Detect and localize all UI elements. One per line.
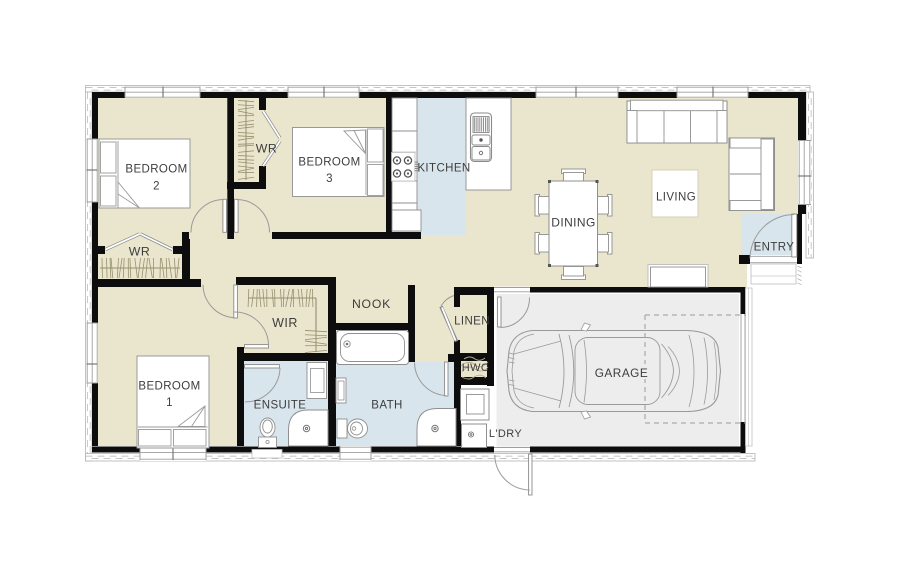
svg-text:WR: WR (129, 245, 151, 259)
svg-text:BEDROOM: BEDROOM (138, 381, 200, 393)
svg-text:KITCHEN: KITCHEN (417, 163, 470, 175)
svg-text:ENTRY: ENTRY (754, 242, 795, 254)
svg-text:WIR: WIR (272, 316, 298, 330)
svg-text:LINEN: LINEN (454, 316, 490, 328)
svg-text:ENSUITE: ENSUITE (254, 400, 307, 412)
svg-text:DINING: DINING (551, 216, 595, 230)
svg-text:LIVING: LIVING (656, 192, 696, 204)
svg-text:1: 1 (166, 397, 173, 409)
svg-text:NOOK: NOOK (352, 297, 391, 311)
svg-text:3: 3 (326, 173, 333, 185)
svg-text:BEDROOM: BEDROOM (125, 164, 187, 176)
svg-text:BATH: BATH (371, 400, 402, 412)
svg-text:2: 2 (153, 181, 160, 193)
svg-text:L'DRY: L'DRY (489, 428, 523, 440)
svg-text:GARAGE: GARAGE (595, 366, 648, 380)
svg-text:WR: WR (256, 142, 278, 156)
svg-text:BEDROOM: BEDROOM (298, 157, 360, 169)
svg-text:HWC: HWC (462, 362, 489, 374)
